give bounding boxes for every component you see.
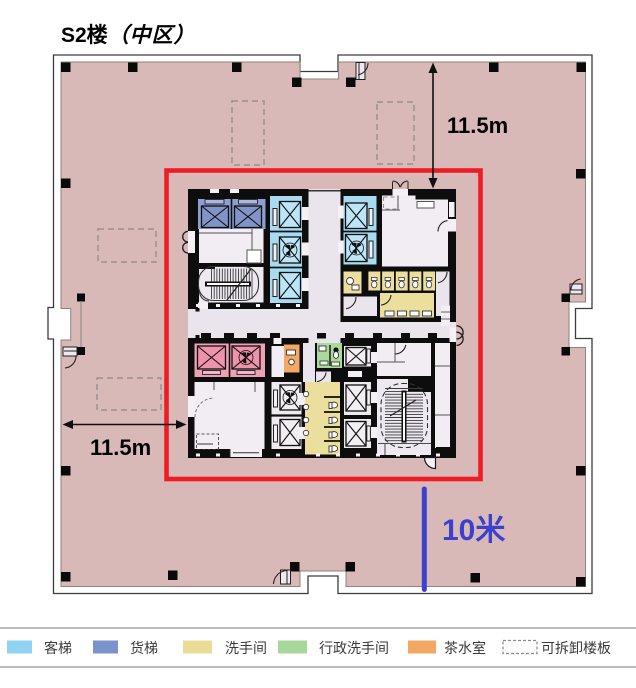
svg-text:10米: 10米 xyxy=(442,514,505,547)
svg-text:货梯: 货梯 xyxy=(130,640,158,656)
svg-text:行政洗手间: 行政洗手间 xyxy=(319,640,389,656)
svg-text:11.5m: 11.5m xyxy=(90,435,151,460)
svg-text:洗手间: 洗手间 xyxy=(225,640,267,656)
svg-text:S2楼（中区）: S2楼（中区） xyxy=(61,23,196,47)
svg-text:11.5m: 11.5m xyxy=(447,113,508,138)
svg-text:茶水室: 茶水室 xyxy=(444,640,486,656)
svg-text:可拆卸楼板: 可拆卸楼板 xyxy=(541,640,611,656)
svg-text:客梯: 客梯 xyxy=(44,640,72,656)
